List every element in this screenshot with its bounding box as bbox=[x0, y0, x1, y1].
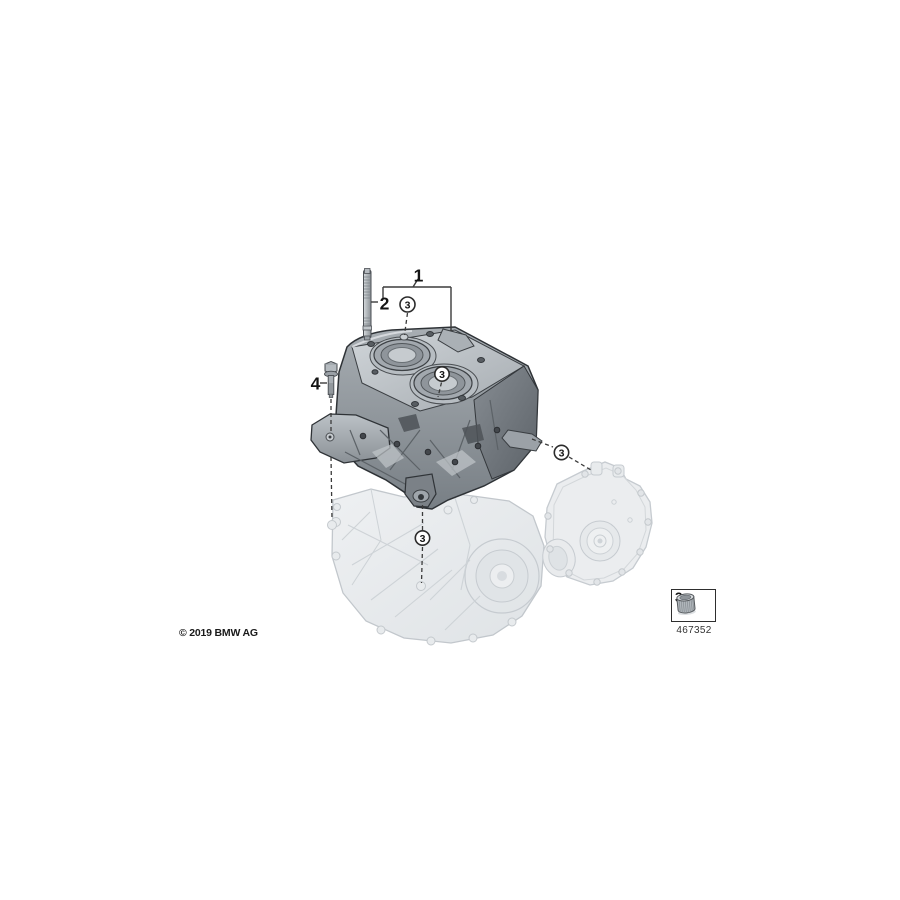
callout-3-hotspot[interactable]: 3 bbox=[415, 531, 429, 545]
hex-bolt-part bbox=[325, 362, 338, 398]
stud-bolt-part bbox=[363, 269, 372, 341]
dowel-sleeve-icon bbox=[672, 590, 699, 617]
transmission-ghost-illustration bbox=[328, 489, 545, 645]
copyright-notice: © 2019 BMW AG bbox=[179, 627, 258, 639]
timing-cover-ghost-illustration bbox=[539, 462, 652, 585]
part-number: 467352 bbox=[663, 625, 725, 636]
callout-3-label[interactable]: 3 bbox=[420, 533, 426, 545]
callout-2-label[interactable]: 2 bbox=[380, 294, 390, 314]
callout-3-hotspot[interactable]: 3 bbox=[554, 445, 568, 459]
part-thumbnail-box[interactable]: 3 bbox=[671, 589, 716, 622]
callout-3-label[interactable]: 3 bbox=[439, 369, 445, 381]
engine-block-illustration bbox=[311, 327, 542, 509]
callout-1-label[interactable]: 1 bbox=[414, 266, 424, 286]
callout-3-label[interactable]: 3 bbox=[405, 299, 411, 311]
parts-diagram-page: 1 2 4 3 3 3 3 3 467352 bbox=[0, 0, 900, 900]
callout-3-hotspot[interactable]: 3 bbox=[400, 297, 415, 312]
callout-3-label[interactable]: 3 bbox=[559, 447, 565, 459]
cylinder-bore-1 bbox=[374, 340, 430, 371]
parts-diagram-canvas: 1 2 4 3 3 3 3 bbox=[0, 0, 900, 900]
callout-4-label[interactable]: 4 bbox=[311, 374, 321, 394]
callout-3-hotspot[interactable]: 3 bbox=[435, 367, 449, 381]
cover-top-lug bbox=[591, 462, 602, 475]
